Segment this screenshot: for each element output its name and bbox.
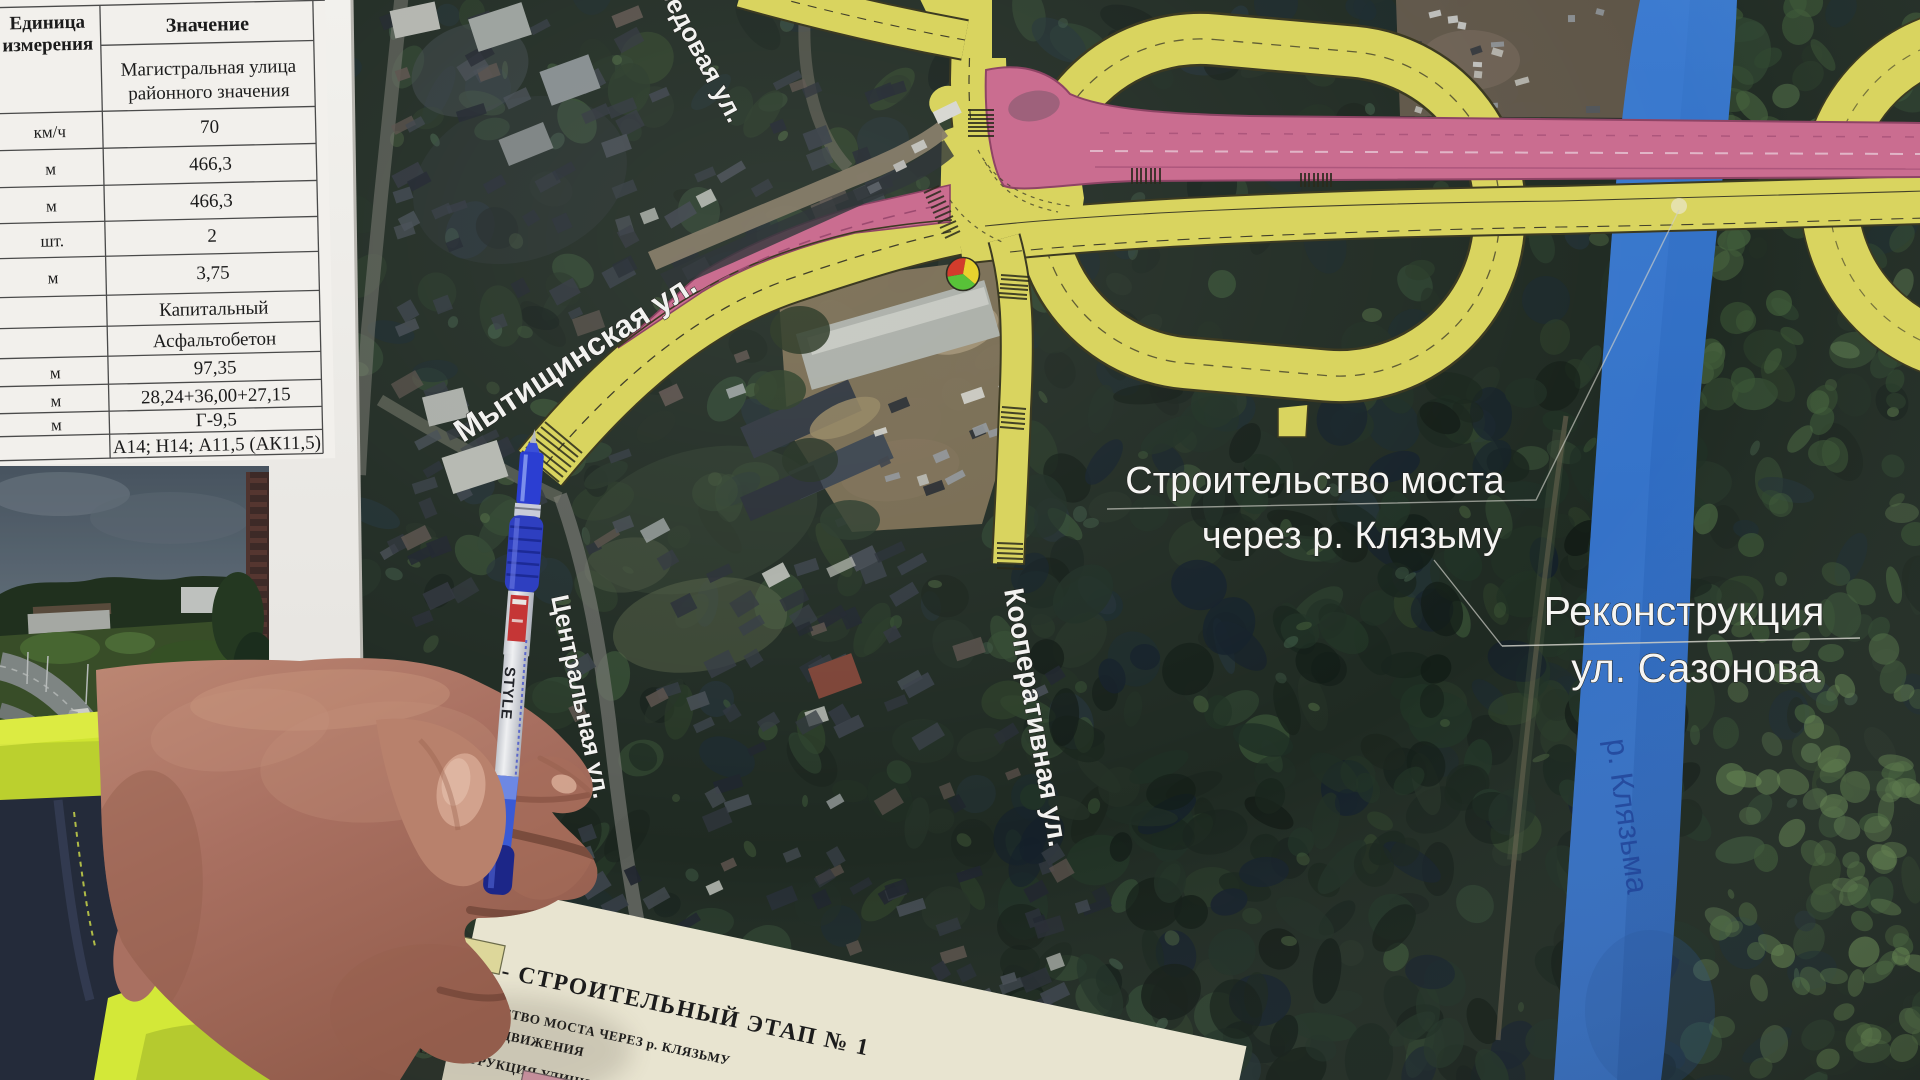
svg-text:Реконструкция: Реконструкция	[1544, 588, 1825, 634]
svg-text:28,24+36,00+27,15: 28,24+36,00+27,15	[141, 384, 291, 408]
svg-text:м: м	[46, 196, 57, 215]
svg-text:466,3: 466,3	[189, 153, 232, 175]
svg-text:2: 2	[207, 226, 217, 247]
svg-text:Асфальтобетон: Асфальтобетон	[153, 328, 277, 352]
svg-text:м: м	[50, 363, 61, 382]
svg-text:466,3: 466,3	[190, 190, 233, 212]
svg-text:м: м	[50, 391, 61, 410]
svg-text:шт.: шт.	[40, 231, 64, 251]
svg-text:районного значения: районного значения	[128, 80, 290, 105]
svg-text:измерения: измерения	[2, 33, 93, 56]
svg-text:м: м	[47, 268, 58, 287]
svg-text:м: м	[51, 415, 62, 434]
svg-text:Г-9,5: Г-9,5	[196, 409, 238, 431]
svg-text:м: м	[45, 159, 56, 178]
svg-text:97,35: 97,35	[194, 357, 237, 379]
svg-text:Магистральная улица: Магистральная улица	[120, 56, 297, 81]
svg-text:Капитальный: Капитальный	[159, 298, 269, 321]
svg-text:ул. Сазонова: ул. Сазонова	[1571, 645, 1821, 691]
svg-text:км/ч: км/ч	[33, 122, 66, 142]
svg-text:70: 70	[200, 117, 219, 138]
svg-text:Строительство моста: Строительство моста	[1125, 460, 1505, 502]
svg-text:Значение: Значение	[165, 13, 249, 37]
svg-text:3,75: 3,75	[196, 262, 230, 284]
svg-text:через р. Клязьму: через р. Клязьму	[1202, 515, 1502, 557]
svg-text:Единица: Единица	[9, 12, 86, 35]
